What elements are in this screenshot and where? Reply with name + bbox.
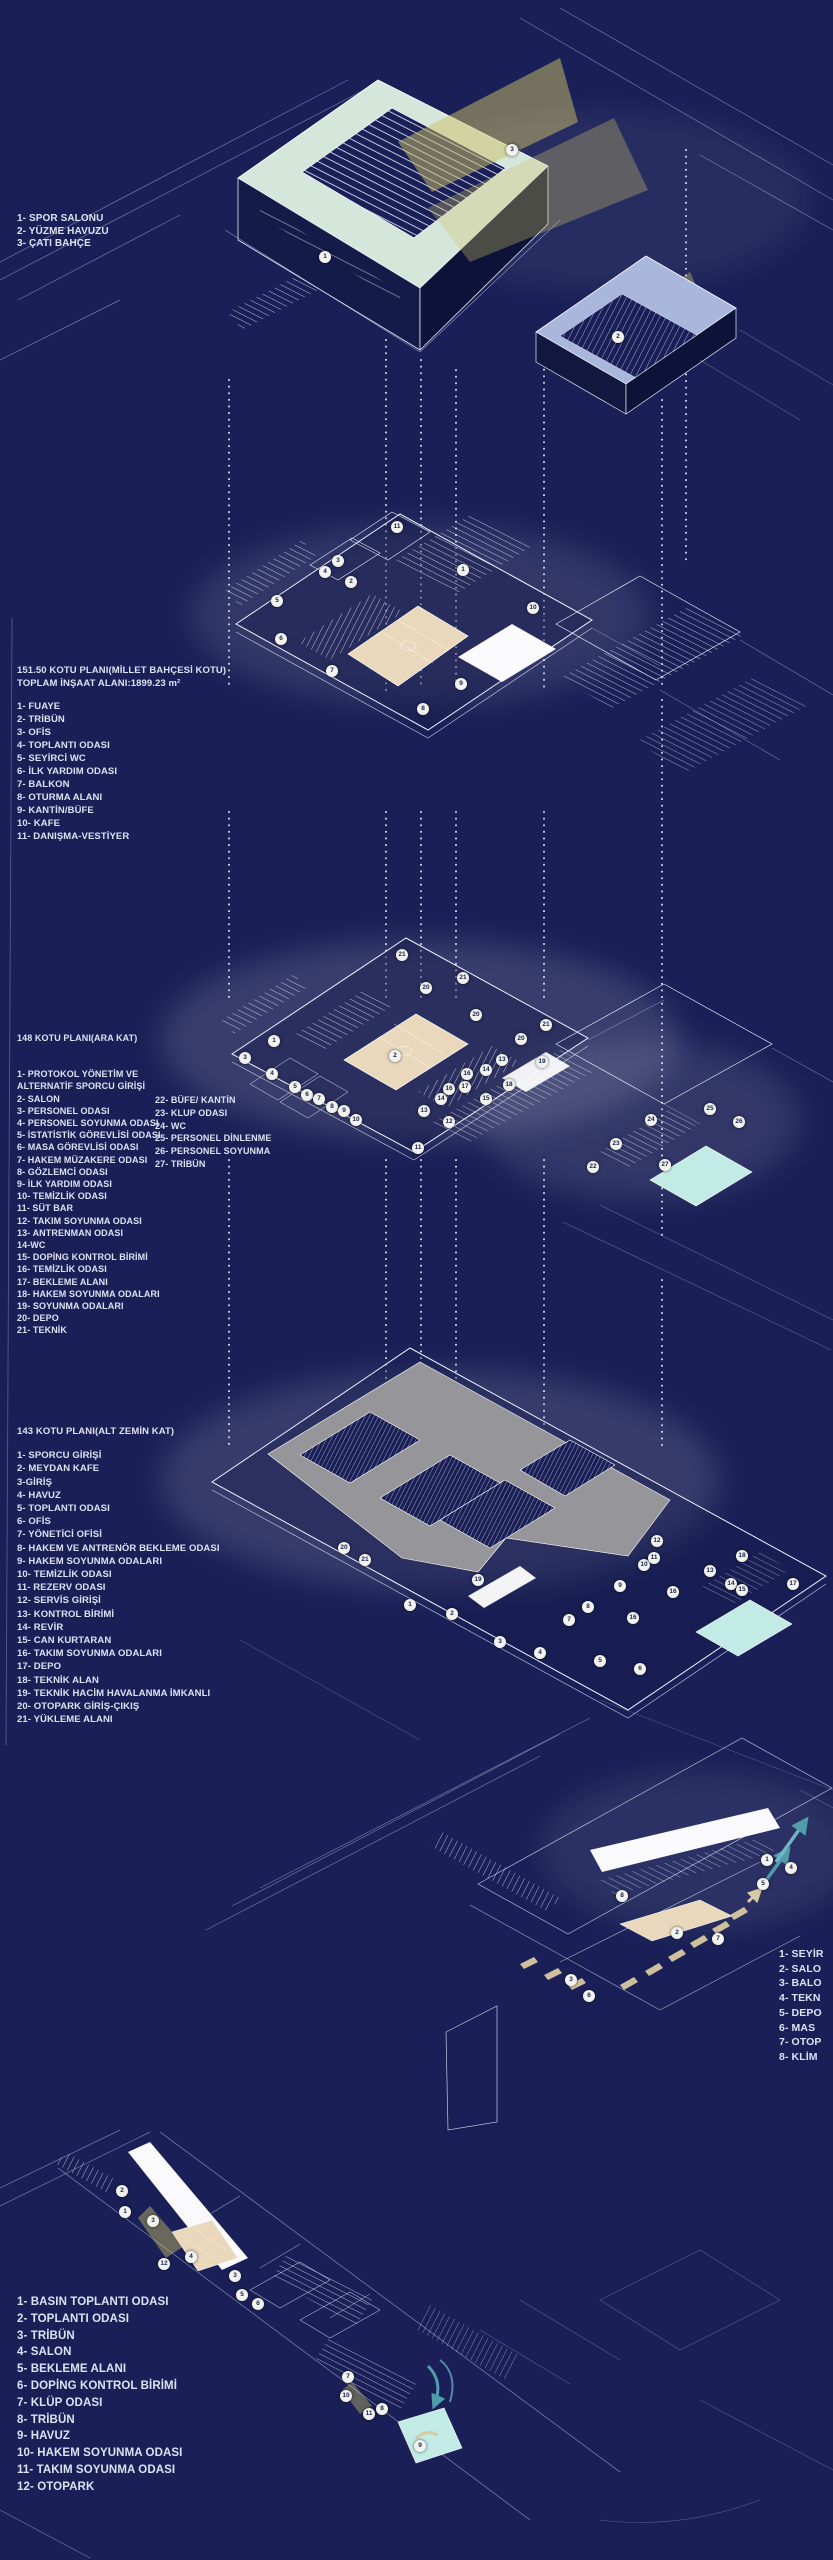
legend-item: 26- PERSONEL SOYUNMA bbox=[155, 1145, 271, 1158]
context-structures bbox=[480, 2250, 833, 2523]
legend-title: 143 KOTU PLANI(ALT ZEMİN KAT) bbox=[17, 1425, 252, 1438]
drawing-section-ventilation bbox=[430, 1738, 833, 2130]
legend-item: 3- ÇATI BAHÇE bbox=[17, 238, 109, 251]
legend-item: 10- TEMİZLİK ODASI bbox=[17, 1190, 163, 1202]
legend-item: 27- TRİBÜN bbox=[155, 1158, 271, 1171]
legend-item: 6- DOPİNG KONTROL BİRİMİ bbox=[17, 2378, 182, 2395]
stair-hatch bbox=[56, 2152, 116, 2192]
legend-item: 7- HAKEM MÜZAKERE ODASI bbox=[17, 1154, 163, 1166]
legend-level-143: 143 KOTU PLANI(ALT ZEMİN KAT) 1- SPORCU … bbox=[17, 1425, 252, 1726]
legend-section-right: 1- SEYİR2- SALO3- BALO4- TEKN5- DEPO6- M… bbox=[779, 1947, 824, 2065]
air-arrow-teal bbox=[428, 2366, 438, 2406]
legend-item: 2- YÜZME HAVUZU bbox=[17, 226, 109, 239]
legend-item: 6- MASA GÖREVLİSİ ODASI bbox=[17, 1141, 163, 1153]
legend-item: 12- TAKIM SOYUNMA ODASI bbox=[17, 1215, 163, 1227]
legend-item: 19- TEKNİK HACİM HAVALANMA İMKANLI bbox=[17, 1687, 252, 1700]
air-arrow-teal bbox=[440, 2360, 452, 2402]
legend-level-15150: 151.50 KOTU PLANI(MİLLET BAHÇESİ KOTU) T… bbox=[17, 664, 227, 843]
legend-item: 7- YÖNETİCİ OFİSİ bbox=[17, 1528, 252, 1541]
legend-item: 17- DEPO bbox=[17, 1660, 252, 1673]
legend-item: 14- REVİR bbox=[17, 1621, 252, 1634]
legend-item: 9- İLK YARDIM ODASI bbox=[17, 1178, 163, 1190]
legend-item: 8- KLİM bbox=[779, 2050, 824, 2065]
legend-item: 11- DANIŞMA-VESTİYER bbox=[17, 830, 227, 843]
legend-item: 5- BEKLEME ALANI bbox=[17, 2361, 182, 2378]
legend-item: 25- PERSONEL DİNLENME bbox=[155, 1132, 271, 1145]
exploded-axonometric-board: 1- SPOR SALONU2- YÜZME HAVUZU3- ÇATI BAH… bbox=[0, 0, 833, 2560]
legend-item: 8- OTURMA ALANI bbox=[17, 791, 227, 804]
legend-item: 5- TOPLANTI ODASI bbox=[17, 1502, 252, 1515]
legend-item: 11- TAKIM SOYUNMA ODASI bbox=[17, 2462, 182, 2479]
legend-item: 6- İLK YARDIM ODASI bbox=[17, 765, 227, 778]
legend-level-148-col2: 22- BÜFE/ KANTİN23- KLUP ODASI24- WC25- … bbox=[155, 1094, 271, 1171]
legend-title: 148 KOTU PLANI(ARA KAT) bbox=[17, 1032, 163, 1044]
legend-item: 16- TEMİZLİK ODASI bbox=[17, 1263, 163, 1275]
legend-item: 23- KLUP ODASI bbox=[155, 1107, 271, 1120]
legend-title: TOPLAM İNŞAAT ALANI:1899.23 m² bbox=[17, 677, 227, 690]
legend-item: 8- HAKEM VE ANTRENÖR BEKLEME ODASI bbox=[17, 1542, 252, 1555]
legend-roof-level: 1- SPOR SALONU2- YÜZME HAVUZU3- ÇATI BAH… bbox=[17, 213, 109, 251]
legend-item: 8- GÖZLEMCİ ODASI bbox=[17, 1166, 163, 1178]
legend-item: 6- OFİS bbox=[17, 1515, 252, 1528]
legend-item: 12- OTOPARK bbox=[17, 2479, 182, 2496]
legend-item: 18- HAKEM SOYUNMA ODALARI bbox=[17, 1288, 163, 1300]
legend-title: 151.50 KOTU PLANI(MİLLET BAHÇESİ KOTU) bbox=[17, 664, 227, 677]
legend-item: 1- SPOR SALONU bbox=[17, 213, 109, 226]
legend-item: 7- KLÜP ODASI bbox=[17, 2395, 182, 2412]
legend-item: 13- ANTRENMAN ODASI bbox=[17, 1227, 163, 1239]
legend-item: 2- TOPLANTI ODASI bbox=[17, 2311, 182, 2328]
legend-item: 1- SEYİR bbox=[779, 1947, 824, 1962]
legend-item: 1- SPORCU GİRİŞİ bbox=[17, 1449, 252, 1462]
legend-item: 3- BALO bbox=[779, 1976, 824, 1991]
legend-item: 20- DEPO bbox=[17, 1312, 163, 1324]
legend-item: 8- TRİBÜN bbox=[17, 2412, 182, 2429]
legend-item: 5- SEYİRCİ WC bbox=[17, 752, 227, 765]
wall-panel-outline bbox=[446, 2006, 497, 2130]
legend-item: 21- TEKNİK bbox=[17, 1324, 163, 1336]
legend-item: 1- FUAYE bbox=[17, 700, 227, 713]
legend-item: 20- OTOPARK GİRİŞ-ÇIKIŞ bbox=[17, 1700, 252, 1713]
legend-item: 16- TAKIM SOYUNMA ODALARI bbox=[17, 1647, 252, 1660]
legend-item: 15- CAN KURTARAN bbox=[17, 1634, 252, 1647]
legend-bottom-section: 1- BASIN TOPLANTI ODASI2- TOPLANTI ODASI… bbox=[17, 2294, 182, 2496]
legend-item: 9- KANTİN/BÜFE bbox=[17, 804, 227, 817]
legend-item: 18- TEKNİK ALAN bbox=[17, 1674, 252, 1687]
legend-item: 2- SALO bbox=[779, 1962, 824, 1977]
legend-item: 6- MAS bbox=[779, 2021, 824, 2036]
legend-item: 22- BÜFE/ KANTİN bbox=[155, 1094, 271, 1107]
legend-item: 5- İSTATİSTİK GÖREVLİSİ ODASI bbox=[17, 1129, 163, 1141]
legend-item: 2- SALON bbox=[17, 1093, 163, 1105]
legend-item: 10- TEMİZLİK ODASI bbox=[17, 1568, 252, 1581]
pool bbox=[398, 2408, 462, 2463]
legend-item: 1- BASIN TOPLANTI ODASI bbox=[17, 2294, 182, 2311]
tribune-hatch bbox=[272, 2252, 372, 2326]
legend-item: 17- BEKLEME ALANI bbox=[17, 1276, 163, 1288]
legend-item: 1- PROTOKOL YÖNETİM VE ALTERNATİF SPORCU… bbox=[17, 1068, 163, 1092]
drawing-level-143 bbox=[160, 1205, 833, 1790]
legend-item: 24- WC bbox=[155, 1120, 271, 1133]
legend-item: 7- OTOP bbox=[779, 2035, 824, 2050]
legend-item: 3- TRİBÜN bbox=[17, 2328, 182, 2345]
legend-item: 15- DOPİNG KONTROL BİRİMİ bbox=[17, 1251, 163, 1263]
legend-item: 3- OFİS bbox=[17, 726, 227, 739]
legend-item: 4- TEKN bbox=[779, 1991, 824, 2006]
legend-item: 13- KONTROL BİRİMİ bbox=[17, 1608, 252, 1621]
legend-item: 3- PERSONEL ODASI bbox=[17, 1105, 163, 1117]
legend-item: 4- TOPLANTI ODASI bbox=[17, 739, 227, 752]
legend-item: 19- SOYUNMA ODALARI bbox=[17, 1300, 163, 1312]
legend-item: 4- PERSONEL SOYUNMA ODASI bbox=[17, 1117, 163, 1129]
legend-item: 2- TRİBÜN bbox=[17, 713, 227, 726]
legend-item: 12- SERVİS GİRİŞİ bbox=[17, 1594, 252, 1607]
legend-item: 5- DEPO bbox=[779, 2006, 824, 2021]
legend-item: 9- HAVUZ bbox=[17, 2428, 182, 2445]
legend-level-148: 148 KOTU PLANI(ARA KAT) 1- PROTOKOL YÖNE… bbox=[17, 1032, 163, 1337]
drawing-level-15150 bbox=[190, 512, 833, 772]
legend-item: 9- HAKEM SOYUNMA ODALARI bbox=[17, 1555, 252, 1568]
legend-item: 7- BALKON bbox=[17, 778, 227, 791]
amphitheater-hatch bbox=[636, 676, 806, 772]
legend-item: 4- HAVUZ bbox=[17, 1489, 252, 1502]
legend-item: 21- YÜKLEME ALANI bbox=[17, 1713, 252, 1726]
legend-item: 2- MEYDAN KAFE bbox=[17, 1462, 252, 1475]
legend-item: 3-GİRİŞ bbox=[17, 1476, 252, 1489]
legend-item: 10- KAFE bbox=[17, 817, 227, 830]
legend-item: 14-WC bbox=[17, 1239, 163, 1251]
legend-item: 11- REZERV ODASI bbox=[17, 1581, 252, 1594]
legend-item: 4- SALON bbox=[17, 2344, 182, 2361]
legend-item: 10- HAKEM SOYUNMA ODASI bbox=[17, 2445, 182, 2462]
legend-item: 11- SÜT BAR bbox=[17, 1202, 163, 1214]
